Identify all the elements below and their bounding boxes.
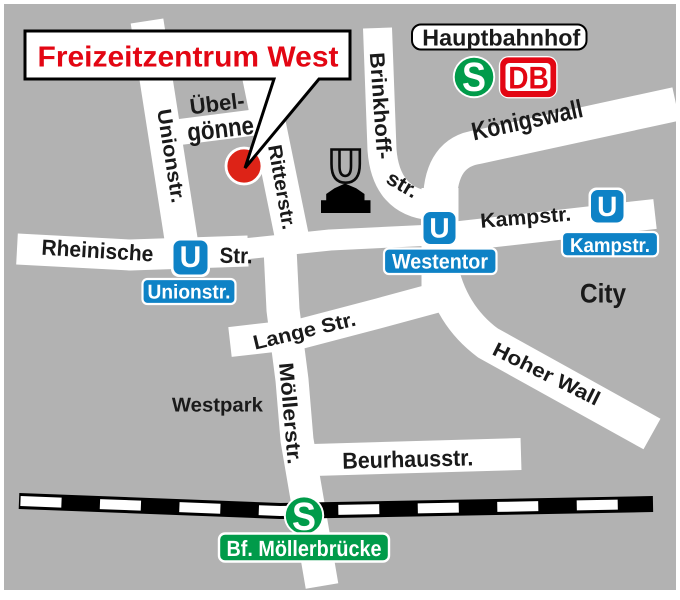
svg-text:Westentor: Westentor xyxy=(392,251,488,274)
svg-text:U: U xyxy=(429,213,449,244)
svg-text:Bf. Möllerbrücke: Bf. Möllerbrücke xyxy=(227,536,382,561)
svg-text:Freizeitzentrum West: Freizeitzentrum West xyxy=(38,42,339,74)
svg-text:Kampstr.: Kampstr. xyxy=(570,235,650,257)
svg-text:City: City xyxy=(580,278,626,308)
svg-text:Str.: Str. xyxy=(219,243,252,269)
svg-text:DB: DB xyxy=(508,59,549,95)
svg-text:S: S xyxy=(292,495,316,539)
svg-text:U: U xyxy=(180,241,202,274)
svg-text:U: U xyxy=(597,191,617,222)
svg-text:Westpark: Westpark xyxy=(172,395,264,417)
svg-text:Beurhausstr.: Beurhausstr. xyxy=(342,444,474,473)
svg-text:Hauptbahnhof: Hauptbahnhof xyxy=(422,24,580,50)
svg-text:Unionstr.: Unionstr. xyxy=(148,282,231,304)
svg-text:S: S xyxy=(462,54,486,100)
